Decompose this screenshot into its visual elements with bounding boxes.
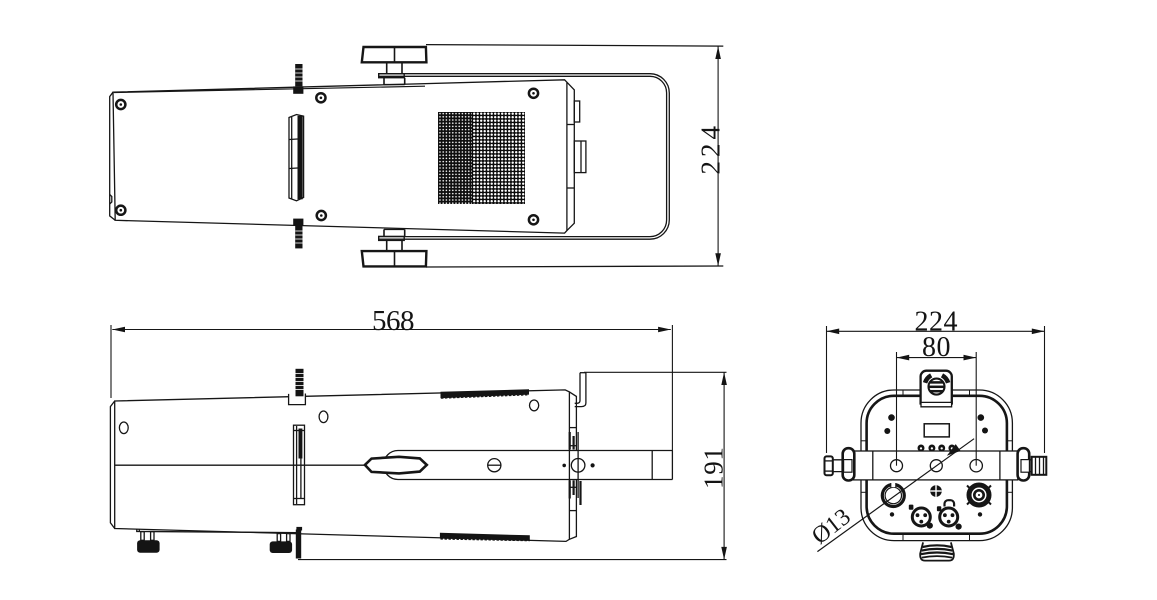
svg-text:80: 80	[922, 332, 951, 363]
svg-text:191: 191	[699, 446, 729, 489]
svg-text:568: 568	[372, 305, 414, 337]
svg-text:224: 224	[696, 122, 726, 175]
